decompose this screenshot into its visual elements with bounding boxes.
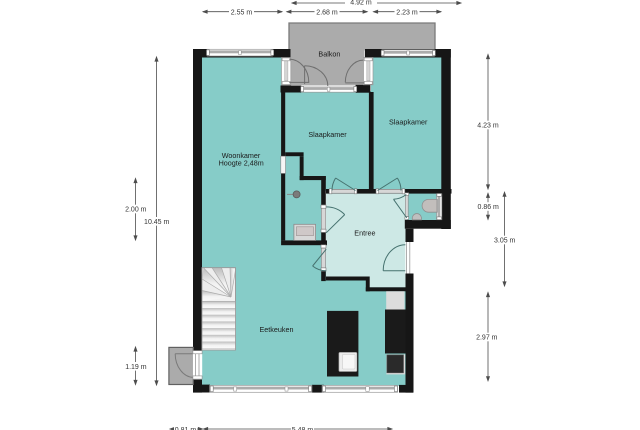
svg-text:1.19 m: 1.19 m bbox=[125, 364, 147, 371]
svg-text:2.68 m: 2.68 m bbox=[316, 9, 338, 16]
svg-text:Eetkeuken: Eetkeuken bbox=[260, 325, 294, 334]
svg-text:3.05 m: 3.05 m bbox=[494, 238, 516, 245]
svg-text:4.92 m: 4.92 m bbox=[350, 0, 372, 6]
svg-text:Slaapkamer: Slaapkamer bbox=[308, 130, 347, 139]
svg-text:2.23 m: 2.23 m bbox=[396, 9, 418, 16]
svg-text:Slaapkamer: Slaapkamer bbox=[389, 117, 428, 126]
svg-text:2.55 m: 2.55 m bbox=[231, 9, 253, 16]
svg-text:Balkon: Balkon bbox=[318, 49, 340, 58]
svg-text:10.45 m: 10.45 m bbox=[144, 219, 169, 226]
svg-text:2.00 m: 2.00 m bbox=[125, 207, 147, 214]
svg-text:Hoogte 2,48m: Hoogte 2,48m bbox=[219, 159, 264, 168]
svg-text:0.86 m: 0.86 m bbox=[477, 204, 499, 211]
svg-text:4.23 m: 4.23 m bbox=[477, 123, 499, 130]
svg-text:Entree: Entree bbox=[354, 229, 375, 238]
svg-text:2.97 m: 2.97 m bbox=[476, 335, 498, 342]
